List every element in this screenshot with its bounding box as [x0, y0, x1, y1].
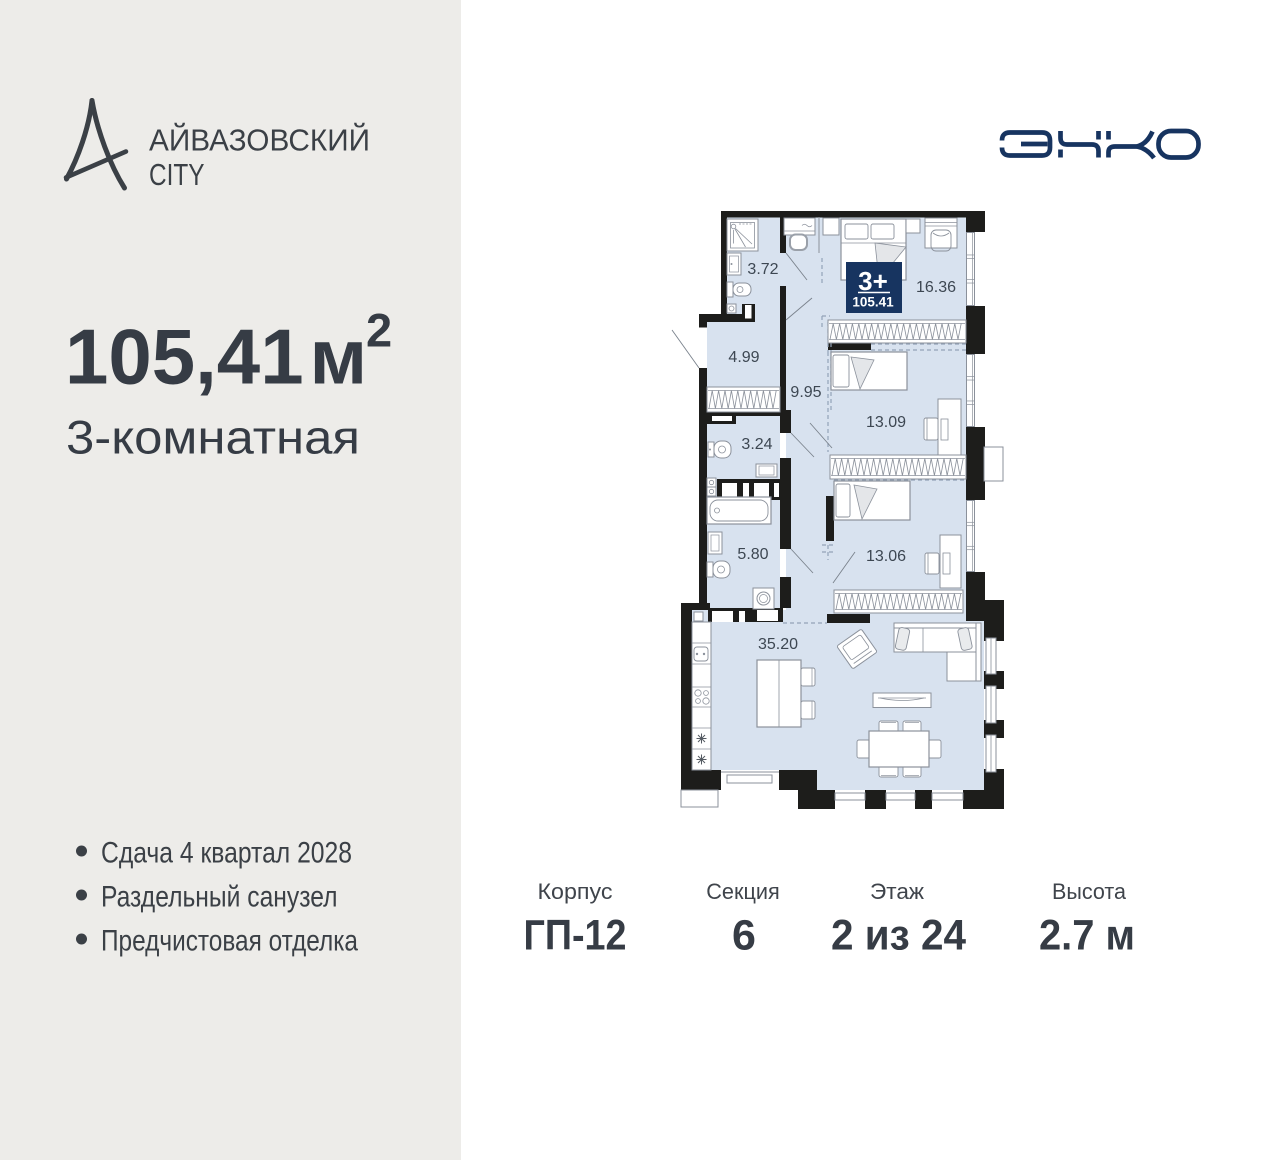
svg-text:Этаж: Этаж: [870, 879, 924, 904]
svg-text:5.80: 5.80: [737, 546, 768, 563]
svg-text:13.09: 13.09: [866, 414, 906, 431]
svg-text:2.7 м: 2.7 м: [1039, 912, 1135, 960]
svg-text:Высота: Высота: [1052, 879, 1127, 904]
svg-text:CITY: CITY: [149, 158, 205, 192]
svg-text:6: 6: [732, 912, 756, 960]
svg-text:35.20: 35.20: [758, 636, 798, 653]
svg-text:2: 2: [366, 304, 392, 357]
svg-text:Корпус: Корпус: [538, 879, 613, 904]
svg-text:3-комнатная: 3-комнатная: [66, 412, 360, 465]
svg-text:2 из 24: 2 из 24: [831, 912, 966, 960]
svg-text:105.41: 105.41: [852, 295, 894, 310]
svg-text:3.72: 3.72: [747, 261, 778, 278]
svg-text:Раздельный санузел: Раздельный санузел: [101, 881, 338, 914]
svg-text:3.24: 3.24: [741, 436, 772, 453]
svg-text:4.99: 4.99: [728, 349, 759, 366]
svg-text:м: м: [310, 313, 368, 401]
svg-text:9.95: 9.95: [790, 384, 821, 401]
svg-text:16.36: 16.36: [916, 279, 956, 296]
svg-text:АЙВАЗОВСКИЙ: АЙВАЗОВСКИЙ: [149, 122, 370, 158]
svg-text:3+: 3+: [858, 266, 888, 296]
svg-text:ГП-12: ГП-12: [524, 912, 627, 960]
svg-text:105,41: 105,41: [65, 313, 304, 401]
svg-text:13.06: 13.06: [866, 548, 906, 565]
svg-text:Сдача 4 квартал 2028: Сдача 4 квартал 2028: [101, 837, 352, 870]
svg-text:Предчистовая отделка: Предчистовая отделка: [101, 925, 358, 958]
svg-text:Секция: Секция: [706, 879, 780, 904]
